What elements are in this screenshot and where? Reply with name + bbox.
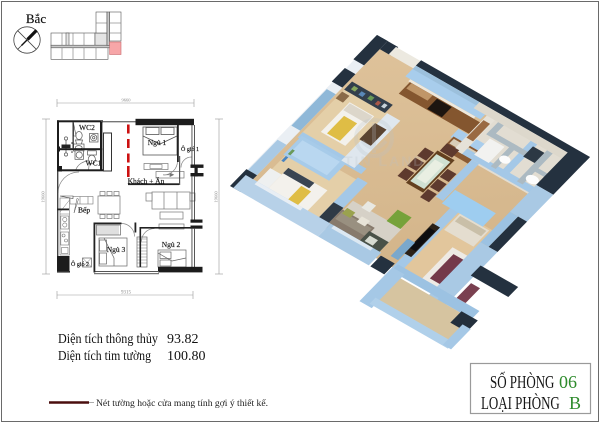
svg-text:TIN LAND: TIN LAND bbox=[344, 153, 425, 169]
